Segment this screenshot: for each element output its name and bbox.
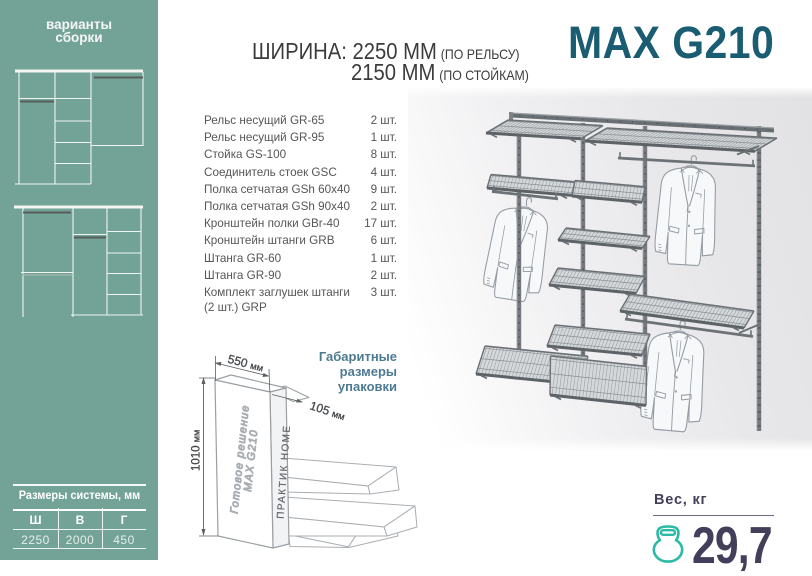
svg-text:550 мм: 550 мм — [226, 352, 265, 375]
svg-text:1010 мм: 1010 мм — [191, 430, 203, 471]
svg-text:105 мм: 105 мм — [308, 399, 347, 424]
